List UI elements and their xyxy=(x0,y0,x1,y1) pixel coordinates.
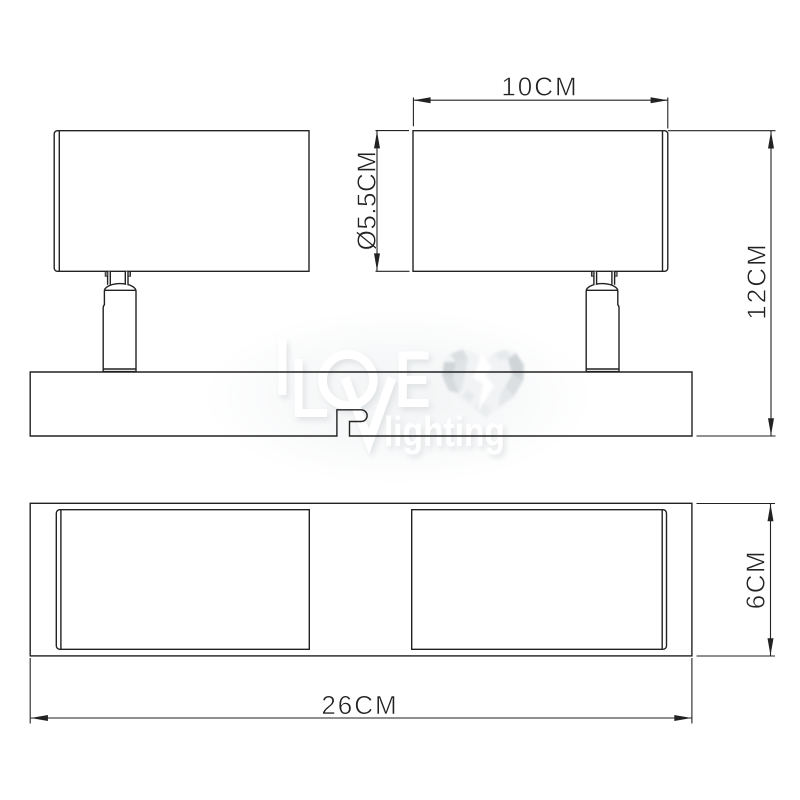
svg-text:26CM: 26CM xyxy=(321,690,398,720)
svg-text:6CM: 6CM xyxy=(741,550,771,609)
svg-text:Ø5.5CM: Ø5.5CM xyxy=(352,151,382,251)
svg-text:12CM: 12CM xyxy=(742,242,772,319)
svg-text:10CM: 10CM xyxy=(501,72,578,102)
